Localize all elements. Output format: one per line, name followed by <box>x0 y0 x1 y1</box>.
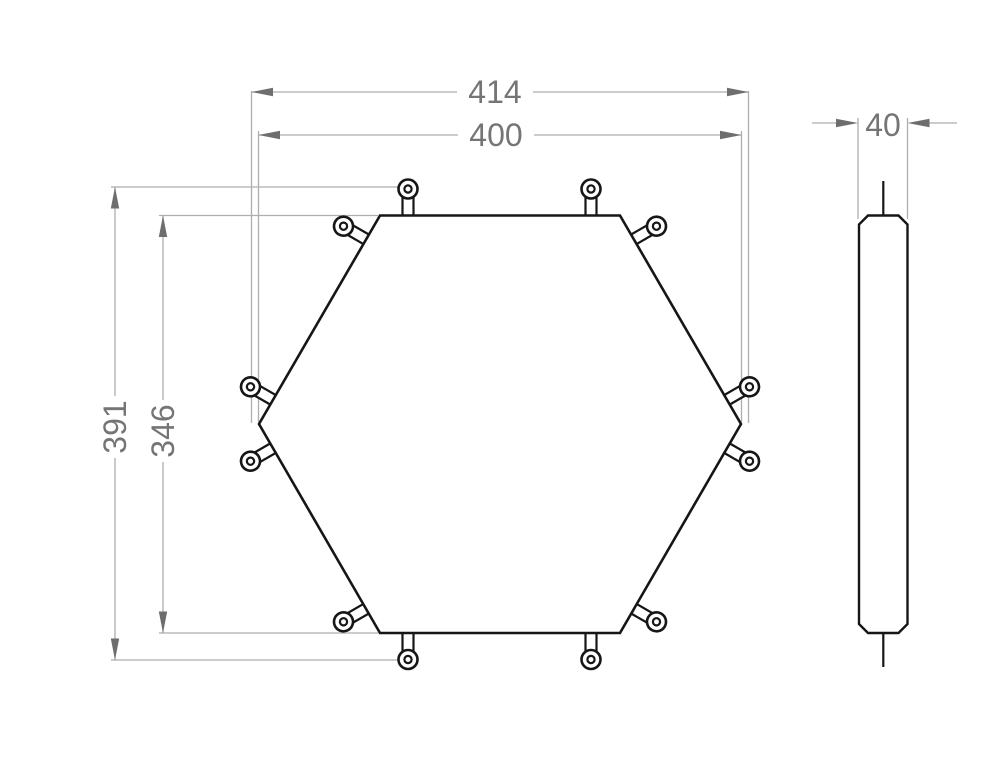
mounting-tab <box>582 180 601 218</box>
arrowhead-left-icon <box>908 119 930 127</box>
arrowhead-down-icon <box>111 639 119 661</box>
arrowhead-up-icon <box>111 187 119 209</box>
dimension-label-overall-height: 391 <box>97 400 133 453</box>
dimension-label-height-across-flats: 346 <box>145 404 181 457</box>
mounting-tab <box>399 180 418 218</box>
dimension-label-width-across-corners: 400 <box>469 117 522 153</box>
mounting-tab <box>582 632 601 670</box>
arrowhead-right-icon <box>836 119 858 127</box>
dimension-label-overall-width: 414 <box>468 74 521 110</box>
hexagon-outline <box>259 216 741 634</box>
technical-drawing-canvas: 414 400 391 <box>0 0 1000 767</box>
arrowhead-left-icon <box>259 131 281 139</box>
arrowhead-down-icon <box>159 612 167 634</box>
arrowhead-up-icon <box>159 216 167 238</box>
arrowhead-left-icon <box>252 88 274 96</box>
top-view <box>238 180 763 670</box>
dimension-label-thickness: 40 <box>865 107 901 143</box>
mounting-tab <box>399 632 418 670</box>
arrowhead-right-icon <box>720 131 742 139</box>
drawing-svg: 414 400 391 <box>0 0 1000 767</box>
side-view <box>859 181 908 667</box>
dimension-thickness: 40 <box>812 107 957 219</box>
side-profile-outline <box>859 216 908 634</box>
arrowhead-right-icon <box>727 88 749 96</box>
